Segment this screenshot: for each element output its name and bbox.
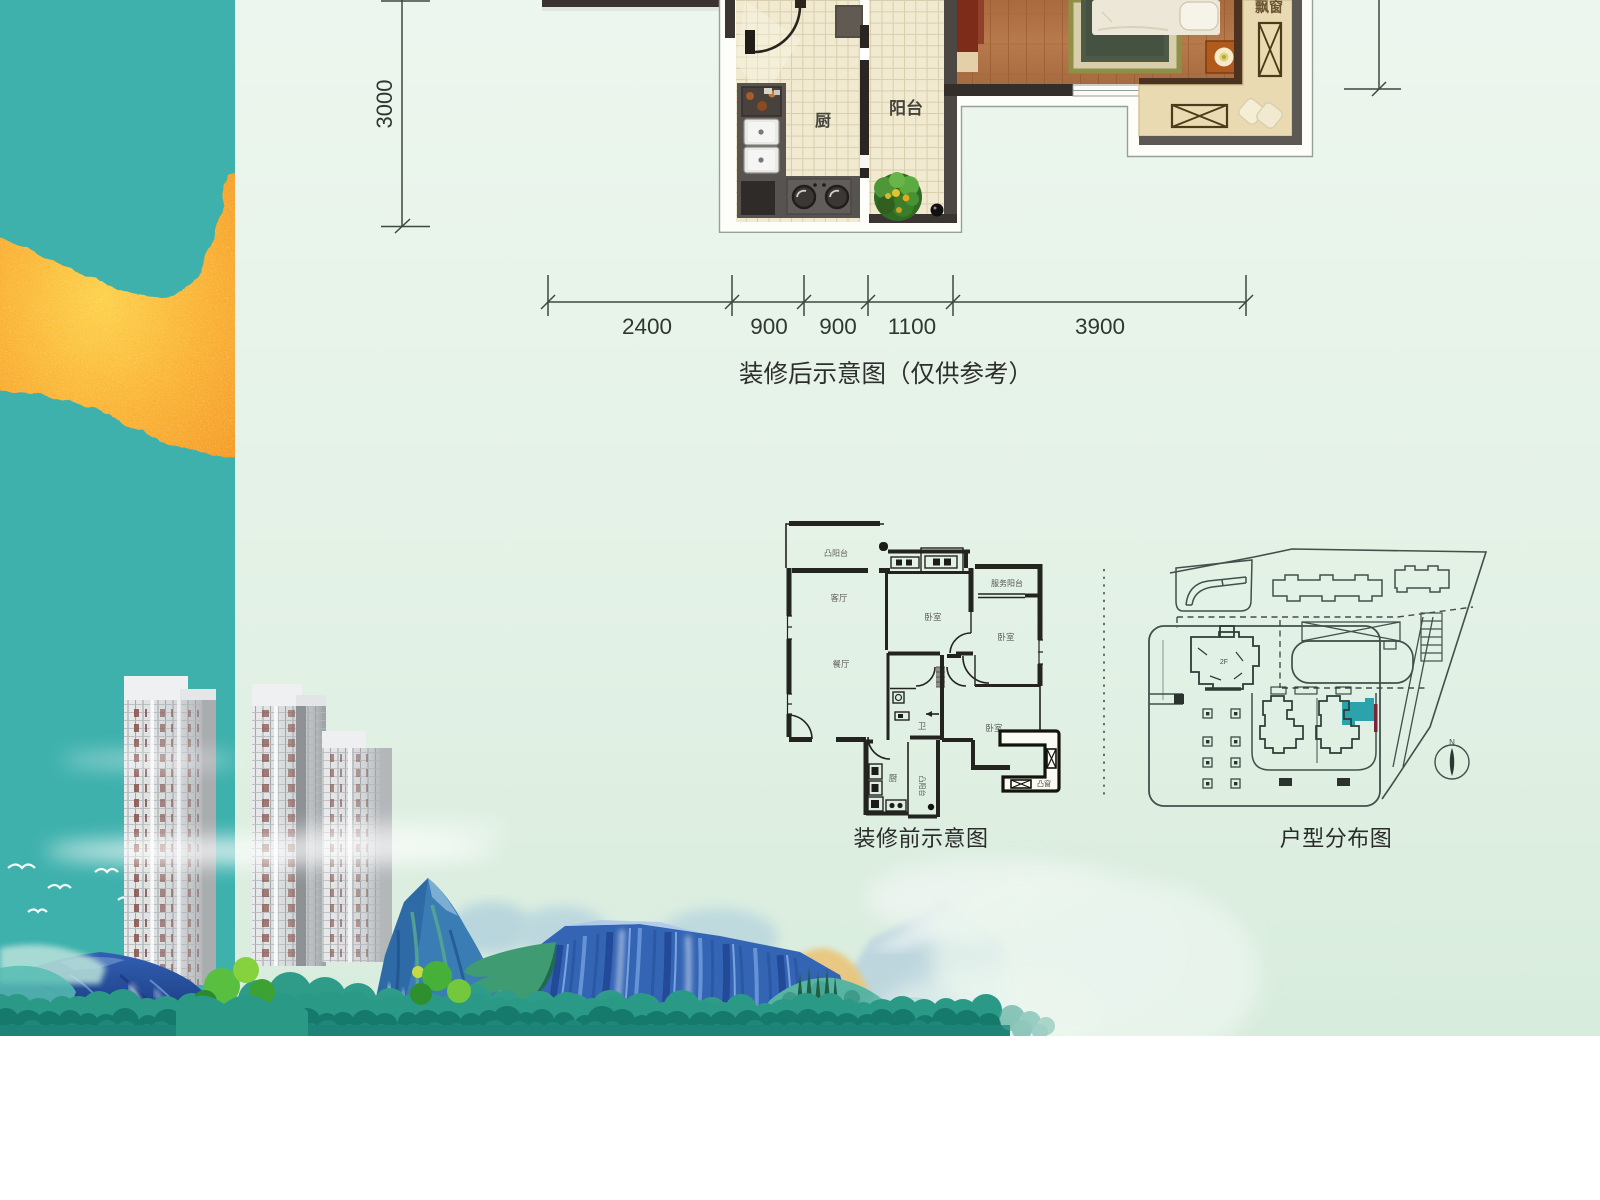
svg-text:阳台: 阳台: [889, 98, 923, 118]
svg-text:餐厅: 餐厅: [832, 659, 850, 669]
svg-text:装修后示意图（仅供参考）: 装修后示意图（仅供参考）: [739, 360, 1033, 388]
svg-text:凸阳台: 凸阳台: [918, 776, 927, 797]
svg-text:服务阳台: 服务阳台: [991, 578, 1023, 588]
svg-text:客厅: 客厅: [830, 593, 848, 603]
svg-text:凸窗: 凸窗: [1037, 779, 1051, 788]
svg-text:飘窗: 飘窗: [1255, 0, 1283, 15]
svg-text:卫: 卫: [918, 721, 927, 731]
svg-text:N: N: [1449, 738, 1455, 747]
svg-text:厨: 厨: [815, 112, 831, 130]
svg-text:装修前示意图: 装修前示意图: [853, 826, 988, 851]
svg-text:2F: 2F: [1220, 659, 1228, 666]
svg-text:厨: 厨: [889, 773, 898, 783]
svg-text:3900: 3900: [1075, 314, 1125, 339]
svg-text:凸阳台: 凸阳台: [824, 548, 848, 558]
svg-text:2400: 2400: [622, 314, 672, 339]
svg-text:900: 900: [819, 314, 857, 339]
svg-text:3000: 3000: [372, 80, 397, 129]
svg-text:1100: 1100: [888, 314, 936, 339]
svg-text:卧室: 卧室: [997, 632, 1015, 642]
svg-text:900: 900: [750, 314, 788, 339]
svg-text:户型分布图: 户型分布图: [1280, 826, 1393, 851]
svg-text:卧室: 卧室: [924, 612, 942, 622]
